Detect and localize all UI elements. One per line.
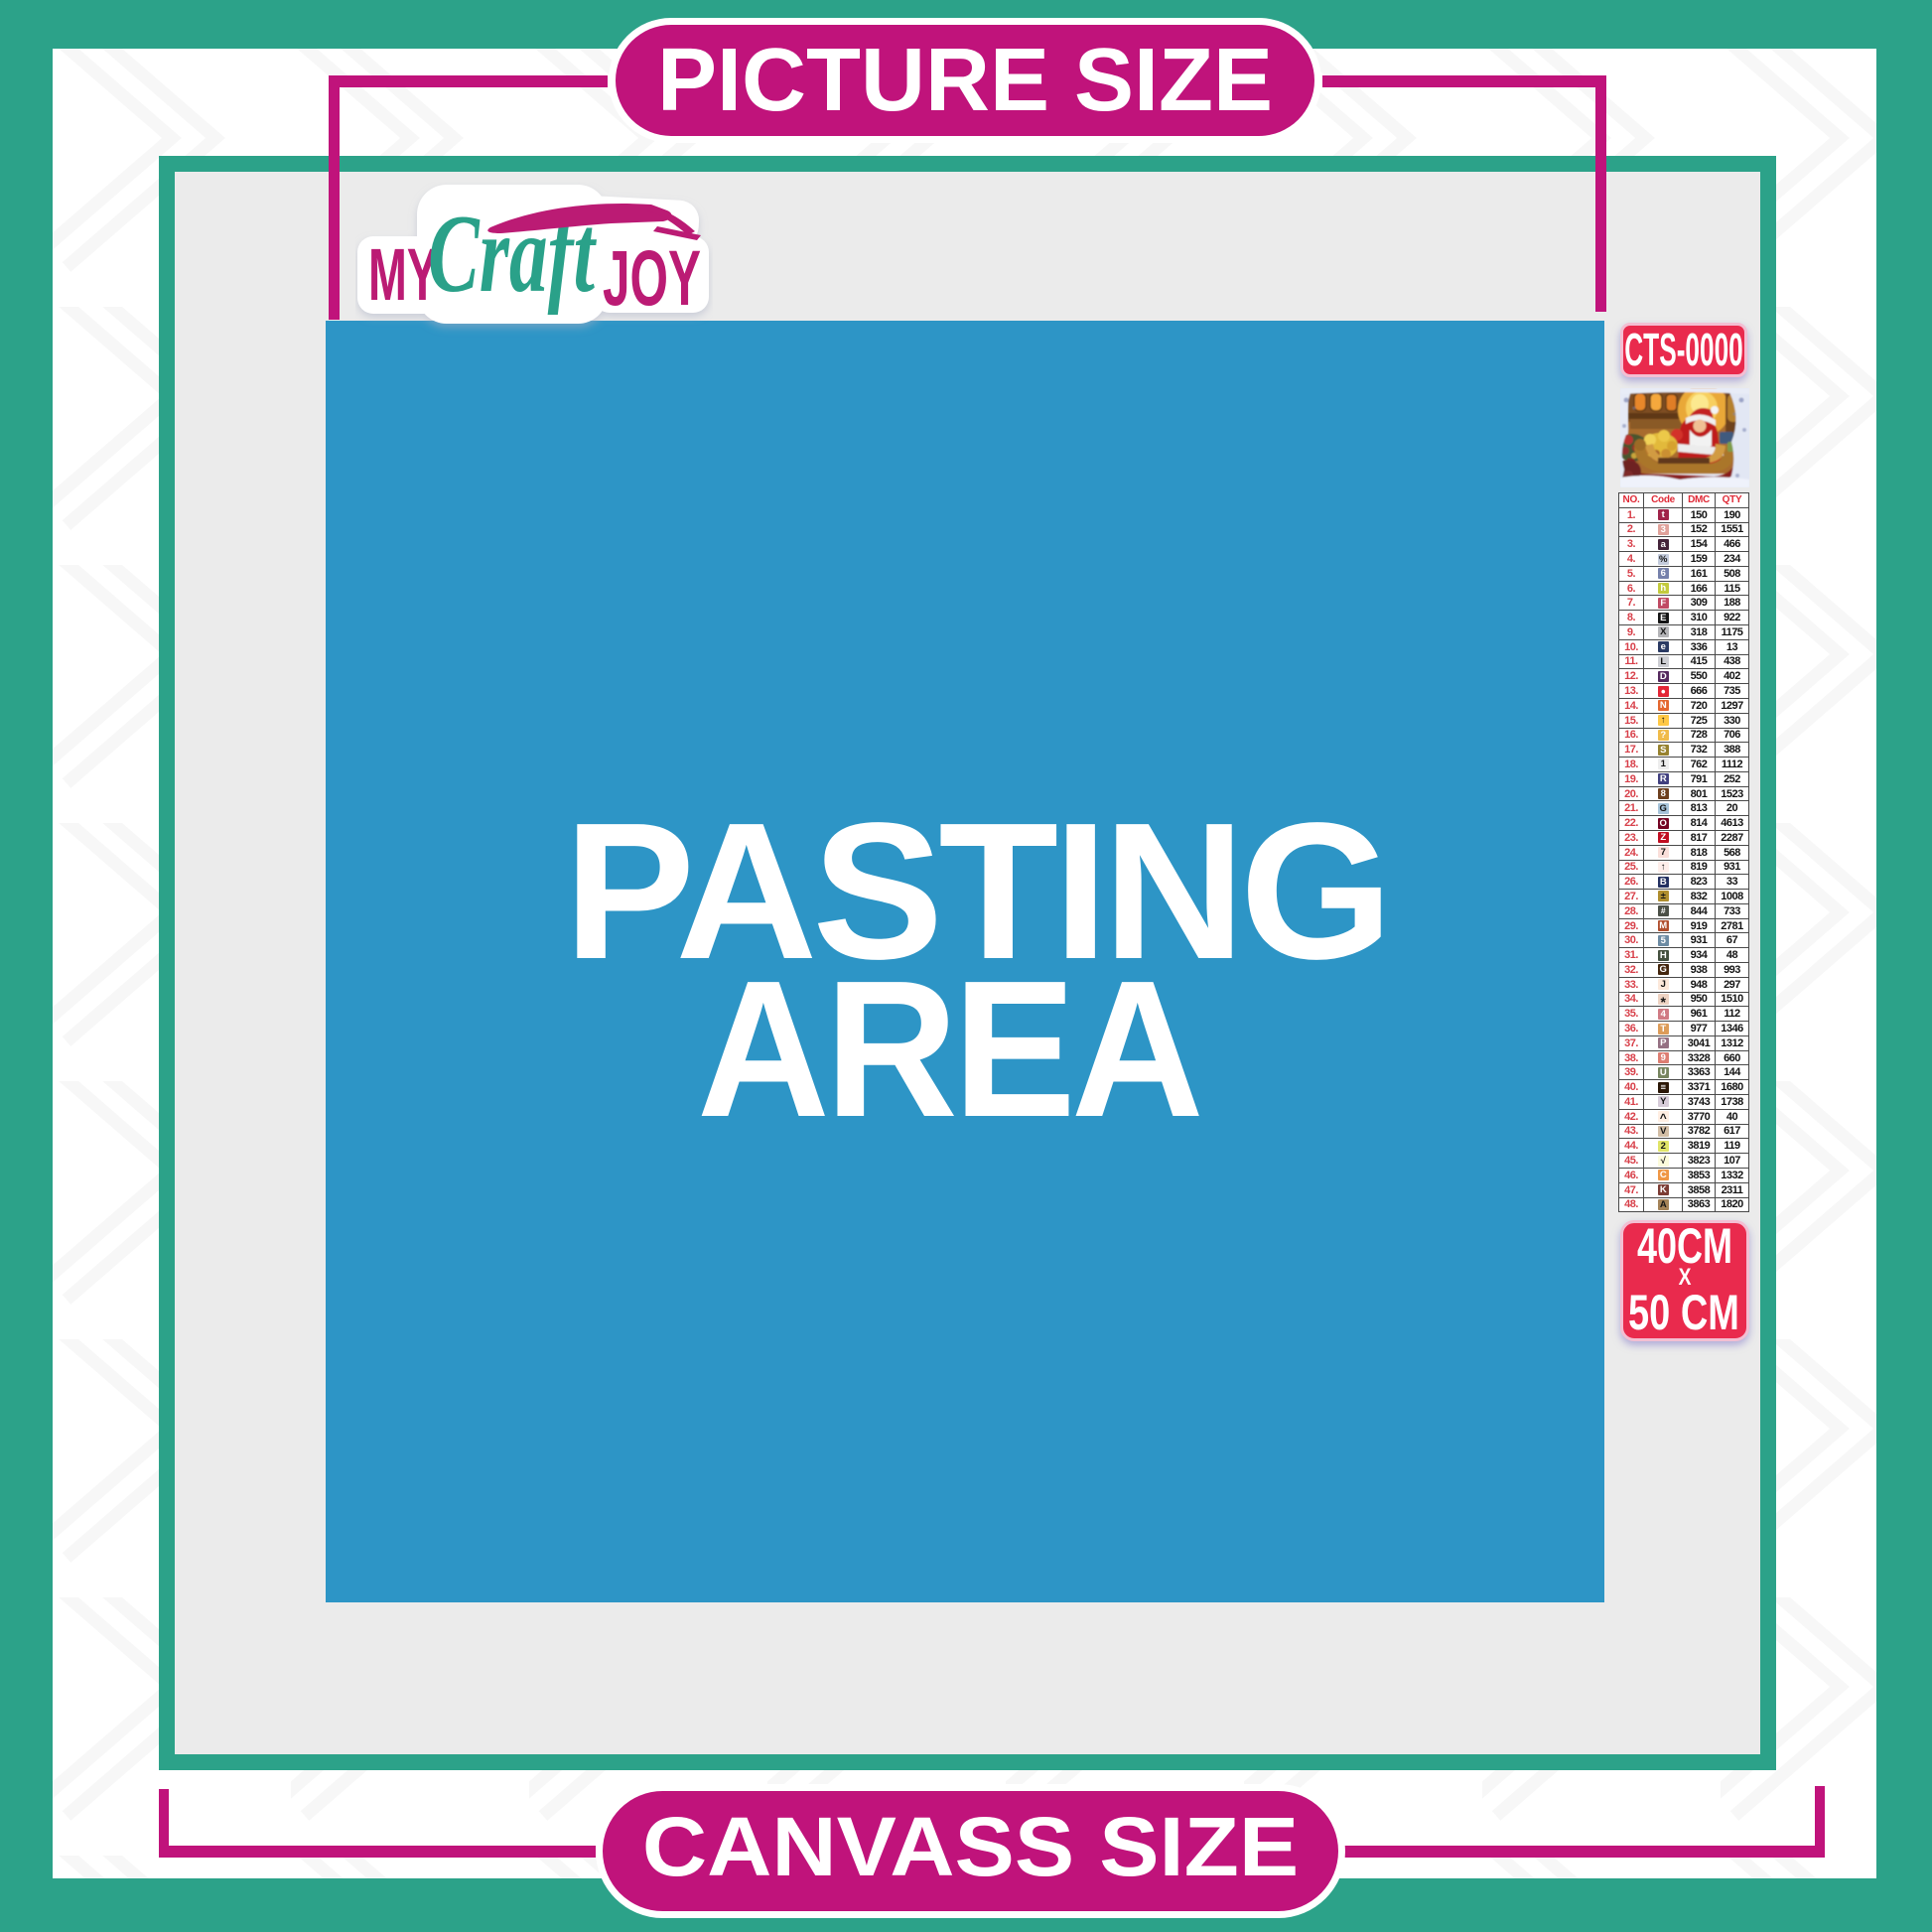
svg-text:JOY: JOY (603, 233, 701, 322)
